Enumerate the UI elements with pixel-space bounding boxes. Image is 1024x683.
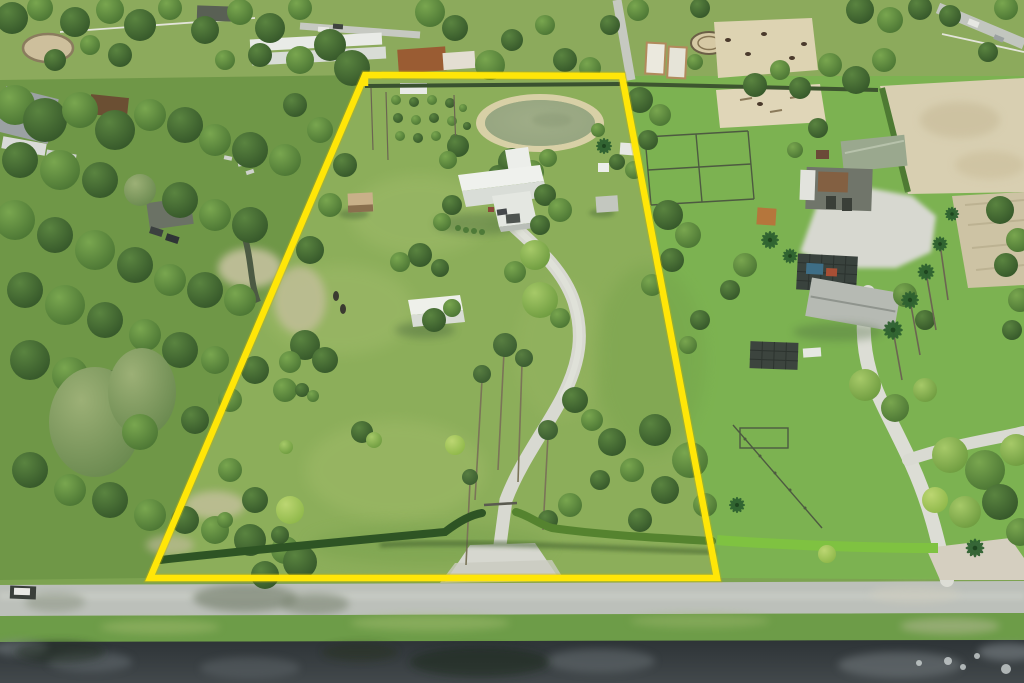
car: [333, 24, 343, 30]
pool-water: [806, 263, 824, 275]
gazebo-roof: [756, 207, 776, 225]
sand-paddock-top: [714, 18, 818, 78]
aerial-photo: [0, 0, 1024, 683]
stable-white-end: [799, 170, 815, 201]
rust-roof-house: [397, 46, 447, 73]
roadside-cars: [10, 586, 36, 600]
tractor: [816, 150, 829, 159]
pond-dark-streak: [532, 113, 572, 127]
white-car: [803, 347, 822, 357]
garage-opening: [506, 213, 521, 223]
treeline-hedge: [365, 84, 620, 86]
rust-house-white-wing: [442, 51, 475, 70]
rust-patch: [818, 171, 849, 192]
road: [0, 581, 1024, 616]
hedge-bush: [818, 545, 836, 563]
red-object: [488, 207, 494, 212]
tree-reflection: [410, 647, 550, 677]
tree-shadow-on-road: [193, 584, 297, 612]
pool-red-patch: [826, 268, 837, 277]
small-white-box: [598, 163, 609, 172]
canal: [0, 640, 1024, 683]
aerial-photo-svg: [0, 0, 1024, 683]
pond: [476, 94, 604, 152]
gray-shed: [595, 195, 618, 212]
parked-car-roof: [14, 588, 30, 596]
grass-verge: [0, 613, 1024, 642]
